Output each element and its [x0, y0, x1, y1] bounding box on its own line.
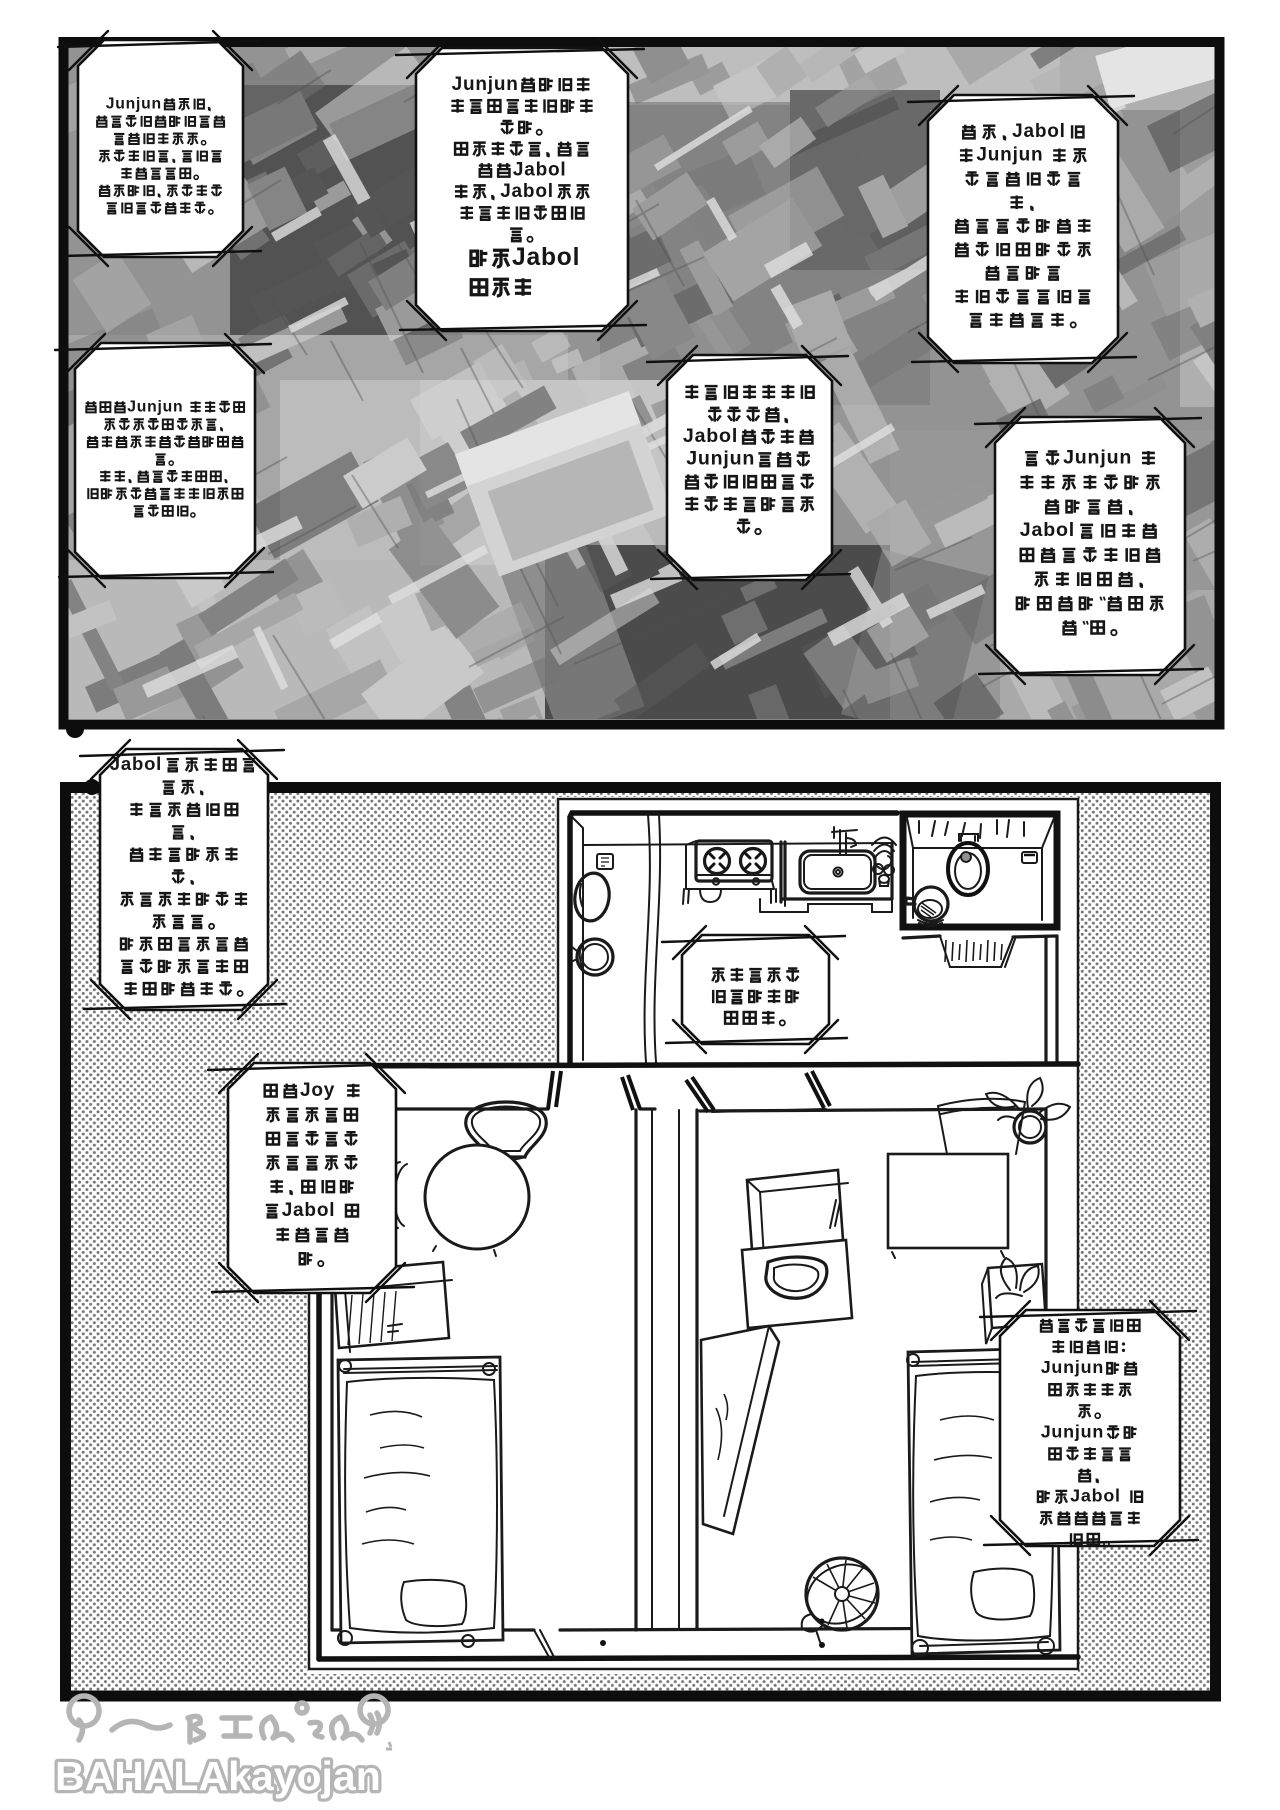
svg-text:Jabol: Jabol [1020, 519, 1075, 541]
svg-text:Jabol: Jabol [1012, 121, 1066, 142]
svg-text:Jabol: Jabol [1070, 1486, 1121, 1506]
svg-text:Joy: Joy [300, 1080, 335, 1101]
svg-text:Jabol: Jabol [512, 244, 580, 271]
svg-text:Junjun: Junjun [127, 398, 183, 415]
svg-text:Jabol: Jabol [683, 425, 738, 447]
svg-text:Junjun: Junjun [1063, 447, 1132, 469]
svg-text:Junjun: Junjun [1041, 1357, 1104, 1377]
svg-text:Jabol: Jabol [500, 181, 554, 202]
svg-text:Junjun: Junjun [106, 95, 162, 112]
svg-text:Jabol: Jabol [513, 159, 567, 180]
svg-text:BAHALAkayojan: BAHALAkayojan [55, 1753, 381, 1799]
svg-text:Junjun: Junjun [452, 74, 519, 95]
svg-text:Junjun: Junjun [686, 448, 755, 470]
svg-text:Jabol: Jabol [282, 1200, 336, 1221]
svg-text:Junjun: Junjun [1041, 1421, 1104, 1441]
svg-text:Jabol: Jabol [110, 753, 162, 774]
svg-text:Junjun: Junjun [976, 145, 1043, 166]
